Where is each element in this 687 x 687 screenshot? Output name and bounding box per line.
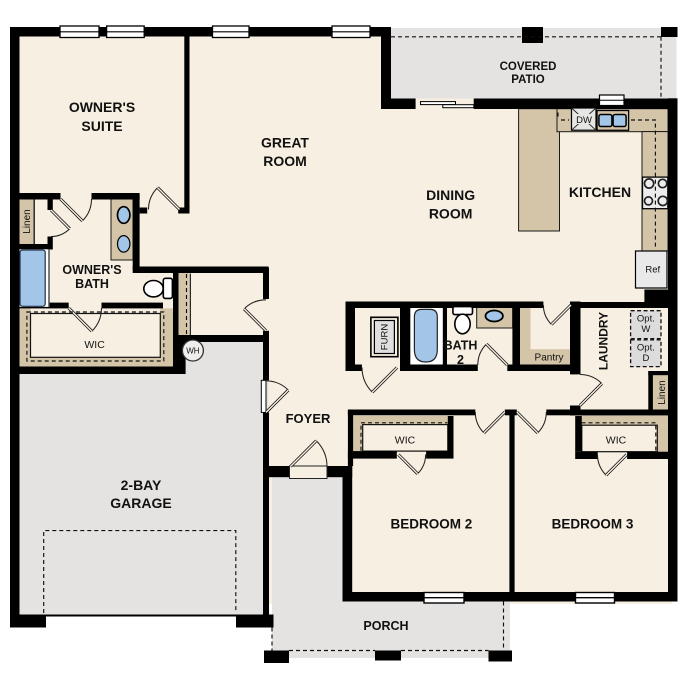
svg-text:BATH: BATH (444, 339, 478, 353)
svg-text:WIC: WIC (395, 435, 416, 447)
svg-text:Linen: Linen (22, 209, 33, 233)
svg-text:FOYER: FOYER (286, 411, 331, 426)
svg-text:Opt.: Opt. (637, 343, 655, 354)
svg-text:KITCHEN: KITCHEN (569, 184, 631, 200)
svg-text:SUITE: SUITE (81, 118, 122, 134)
svg-text:PATIO: PATIO (511, 74, 544, 86)
svg-text:BATH: BATH (75, 277, 109, 291)
svg-text:GREAT: GREAT (261, 135, 309, 151)
svg-text:BEDROOM 3: BEDROOM 3 (552, 517, 634, 532)
svg-text:OWNER'S: OWNER'S (62, 263, 121, 277)
svg-text:Ref: Ref (645, 265, 660, 276)
svg-text:LAUNDRY: LAUNDRY (597, 312, 611, 370)
svg-text:COVERED: COVERED (500, 61, 557, 73)
svg-text:DINING: DINING (426, 187, 475, 203)
svg-text:WIC: WIC (606, 435, 627, 447)
svg-text:GARAGE: GARAGE (110, 495, 171, 511)
svg-text:OWNER'S: OWNER'S (69, 99, 135, 115)
svg-text:ROOM: ROOM (429, 206, 473, 222)
svg-text:DW: DW (576, 115, 592, 126)
svg-text:Opt.: Opt. (637, 314, 655, 325)
svg-text:BEDROOM 2: BEDROOM 2 (391, 517, 473, 532)
svg-text:WH: WH (186, 347, 200, 356)
svg-text:PORCH: PORCH (363, 619, 408, 633)
svg-text:Linen: Linen (657, 380, 668, 404)
svg-text:FURN: FURN (380, 324, 391, 351)
svg-text:D: D (642, 353, 649, 364)
svg-text:Pantry: Pantry (535, 353, 564, 364)
svg-text:2: 2 (457, 353, 464, 367)
svg-text:ROOM: ROOM (263, 153, 307, 169)
svg-text:W: W (641, 324, 650, 335)
svg-text:2-BAY: 2-BAY (121, 477, 162, 493)
svg-text:WIC: WIC (84, 339, 105, 351)
